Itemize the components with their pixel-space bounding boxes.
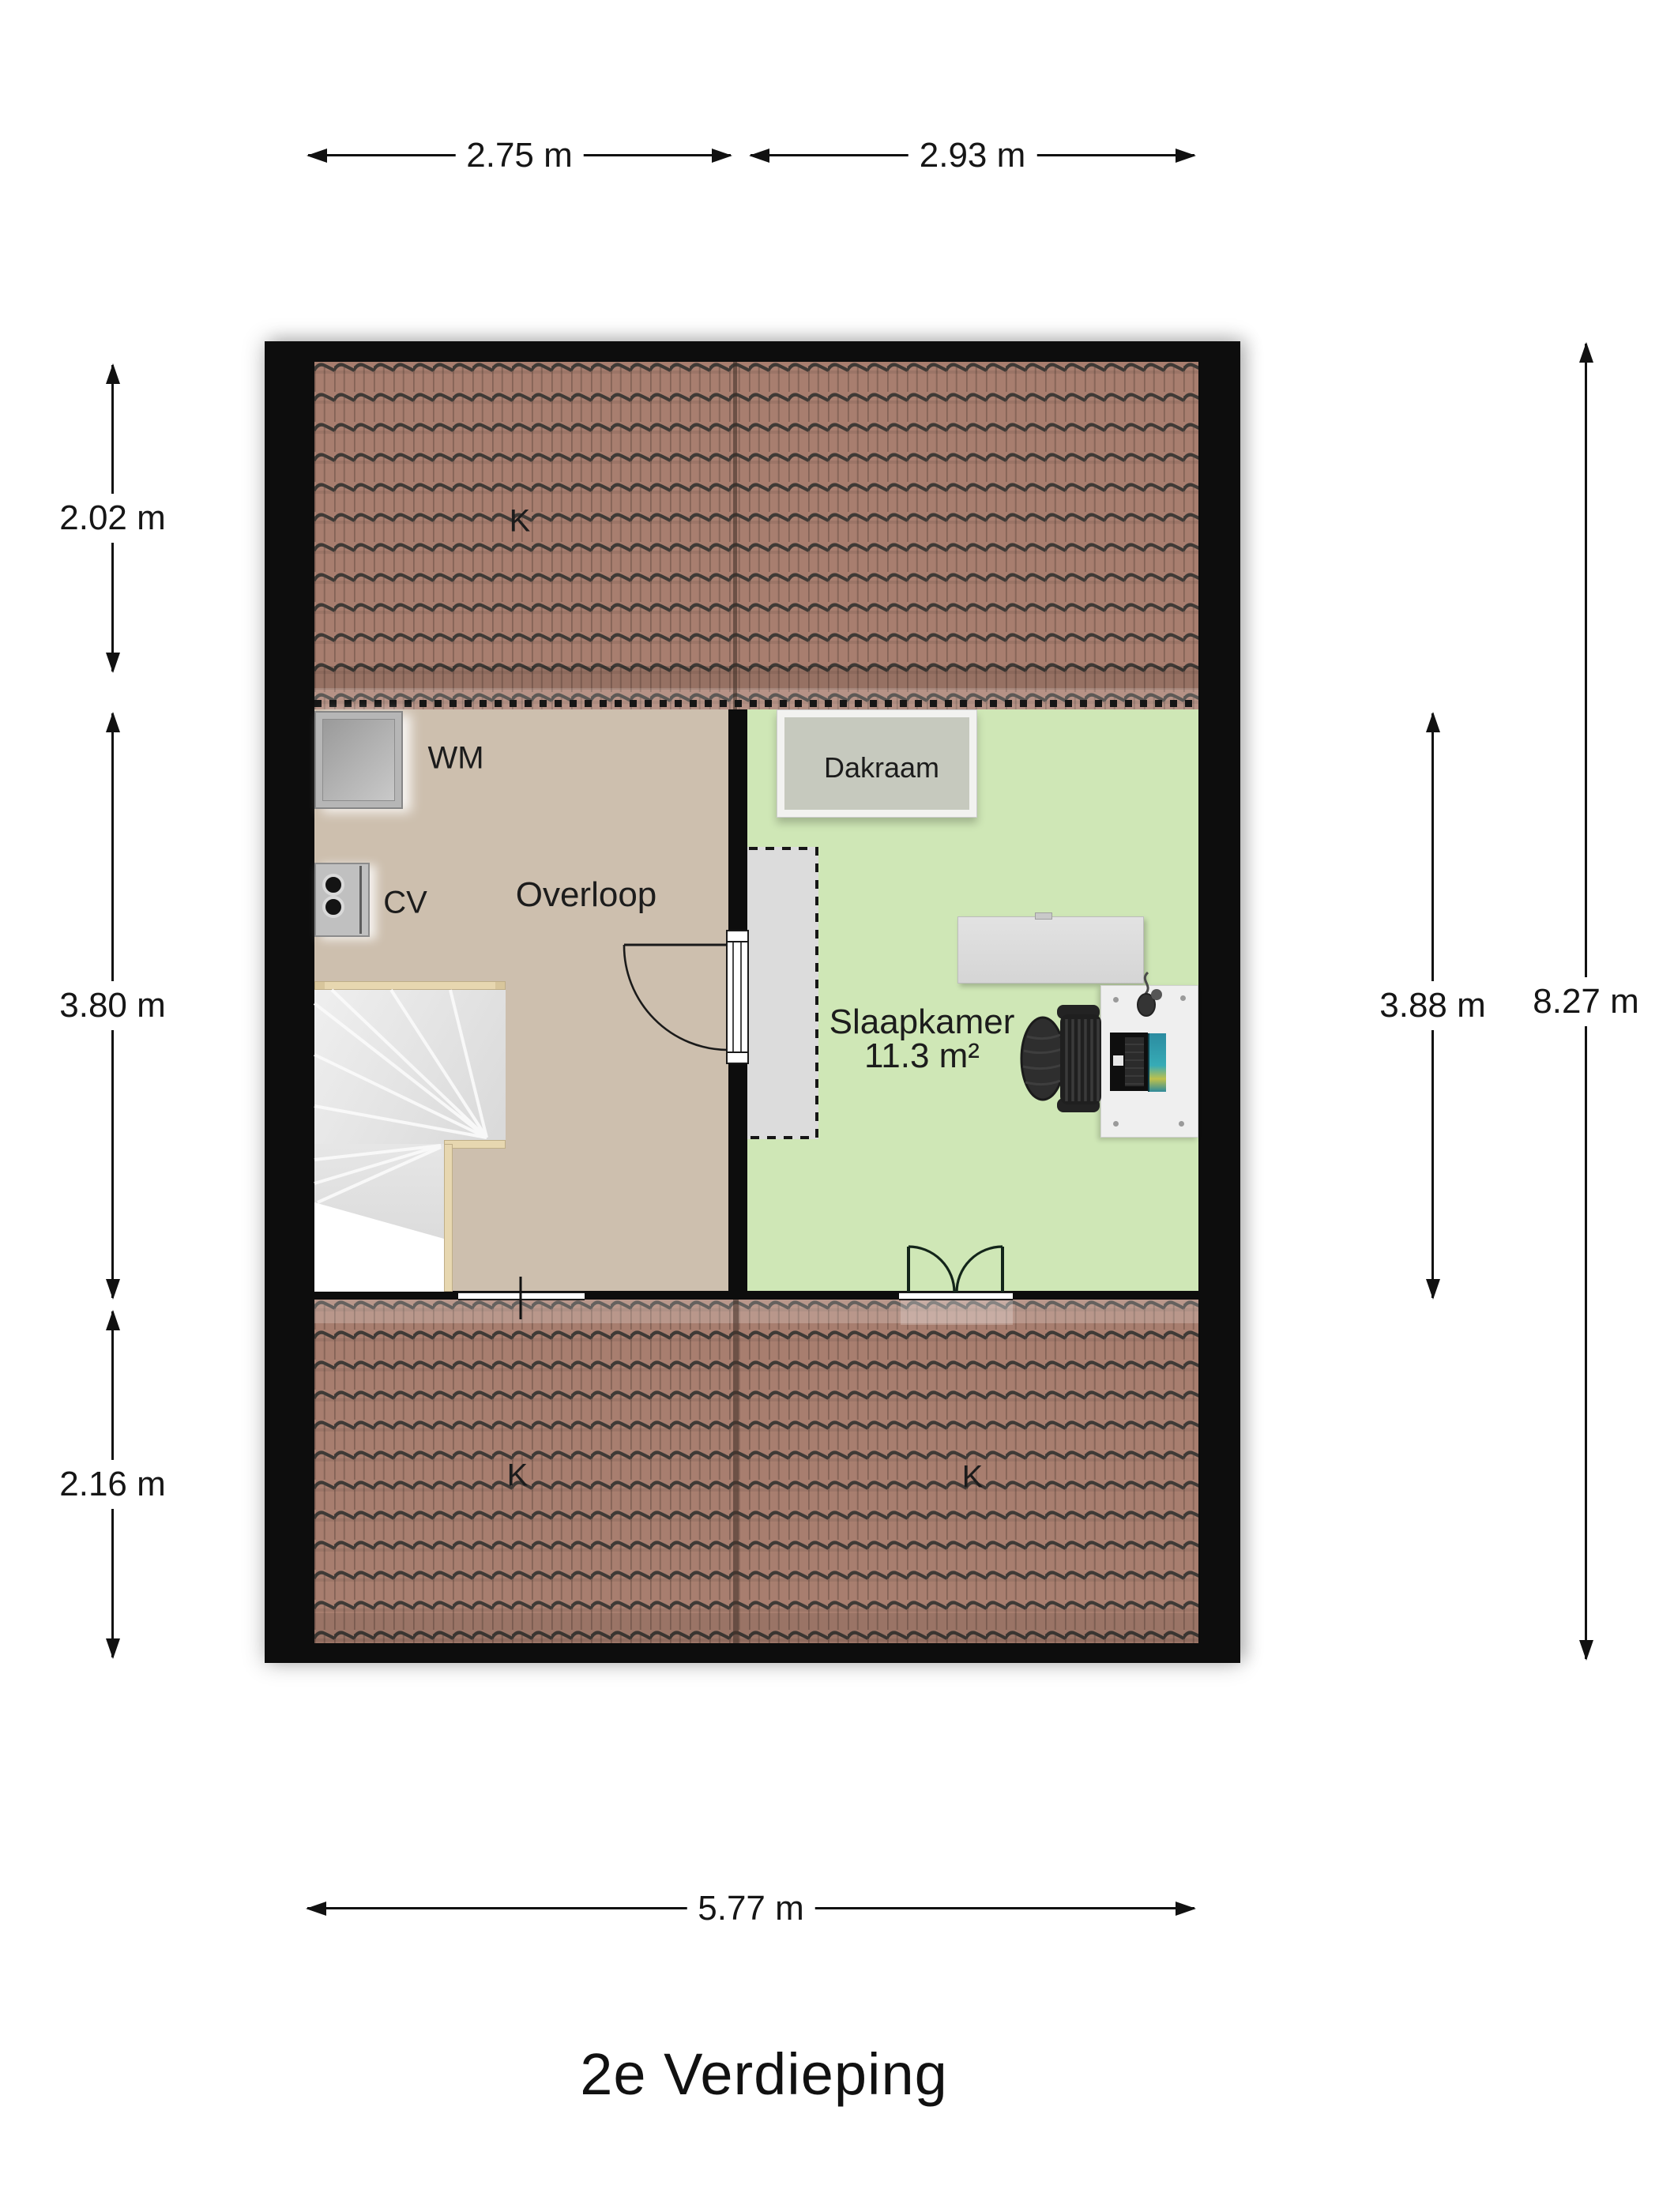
threshold-bedroom-doors [899,1292,1013,1300]
dim-left-upper-label: 2.02 m [51,494,174,543]
dim-right-total: 8.27 m [1585,344,1587,1659]
dim-right-total-label: 8.27 m [1525,977,1647,1026]
roof-label-k-top: K [510,504,531,540]
threshold-stairs [458,1292,585,1300]
roof-ridge-bottom [733,1300,739,1643]
dim-right-bedroom-label: 3.88 m [1371,981,1494,1030]
room-label-overloop: Overloop [516,875,657,915]
roof-label-k-bottom-left: K [507,1458,529,1494]
desk-screw [1113,1121,1119,1127]
washing-machine-label: WM [427,741,483,777]
dim-top-left: 2.75 m [308,154,731,156]
bedroom-dashed-zone [747,847,818,1139]
cv-boiler [314,863,370,937]
dim-left-lower-label: 2.16 m [51,1460,174,1509]
laptop [1110,1033,1148,1091]
dakraam-label: Dakraam [824,751,939,784]
stairs-lower-flight [314,1144,444,1292]
stairs-side-rail [444,1144,453,1292]
desk-screw [1180,995,1186,1001]
stairs-corner-rail [444,1140,506,1149]
roof-ridge-top [733,362,737,709]
dim-left-upper: 2.02 m [111,365,114,671]
floor-title: 2e Verdieping [580,2041,948,2108]
dim-right-bedroom: 3.88 m [1431,713,1434,1298]
cv-boiler-label: CV [383,886,427,921]
book [1148,1033,1166,1092]
room-area-slaapkamer: 11.3 m² [864,1036,980,1076]
dresser [957,916,1144,984]
dim-top-right-label: 2.93 m [908,134,1037,177]
washing-machine [314,711,403,809]
floorplan-page: K K K WM CV Dakraam Overloop Slaapkamer … [0,0,1659,2212]
desk-screw [1179,1121,1184,1127]
desk-screw [1113,997,1119,1003]
knee-wall-dashed-line [314,700,1198,707]
dim-left-middle: 3.80 m [111,713,114,1298]
dim-left-middle-label: 3.80 m [51,981,174,1030]
roof-label-k-bottom-right: K [962,1460,984,1495]
dim-bottom-total: 5.77 m [307,1907,1194,1909]
dim-top-right: 2.93 m [750,154,1194,156]
dim-left-lower: 2.16 m [111,1311,114,1657]
dim-bottom-total-label: 5.77 m [687,1887,815,1930]
stairs-top-rail [314,981,506,990]
stairs-upper-flight [314,990,506,1144]
dim-top-left-label: 2.75 m [455,134,584,177]
